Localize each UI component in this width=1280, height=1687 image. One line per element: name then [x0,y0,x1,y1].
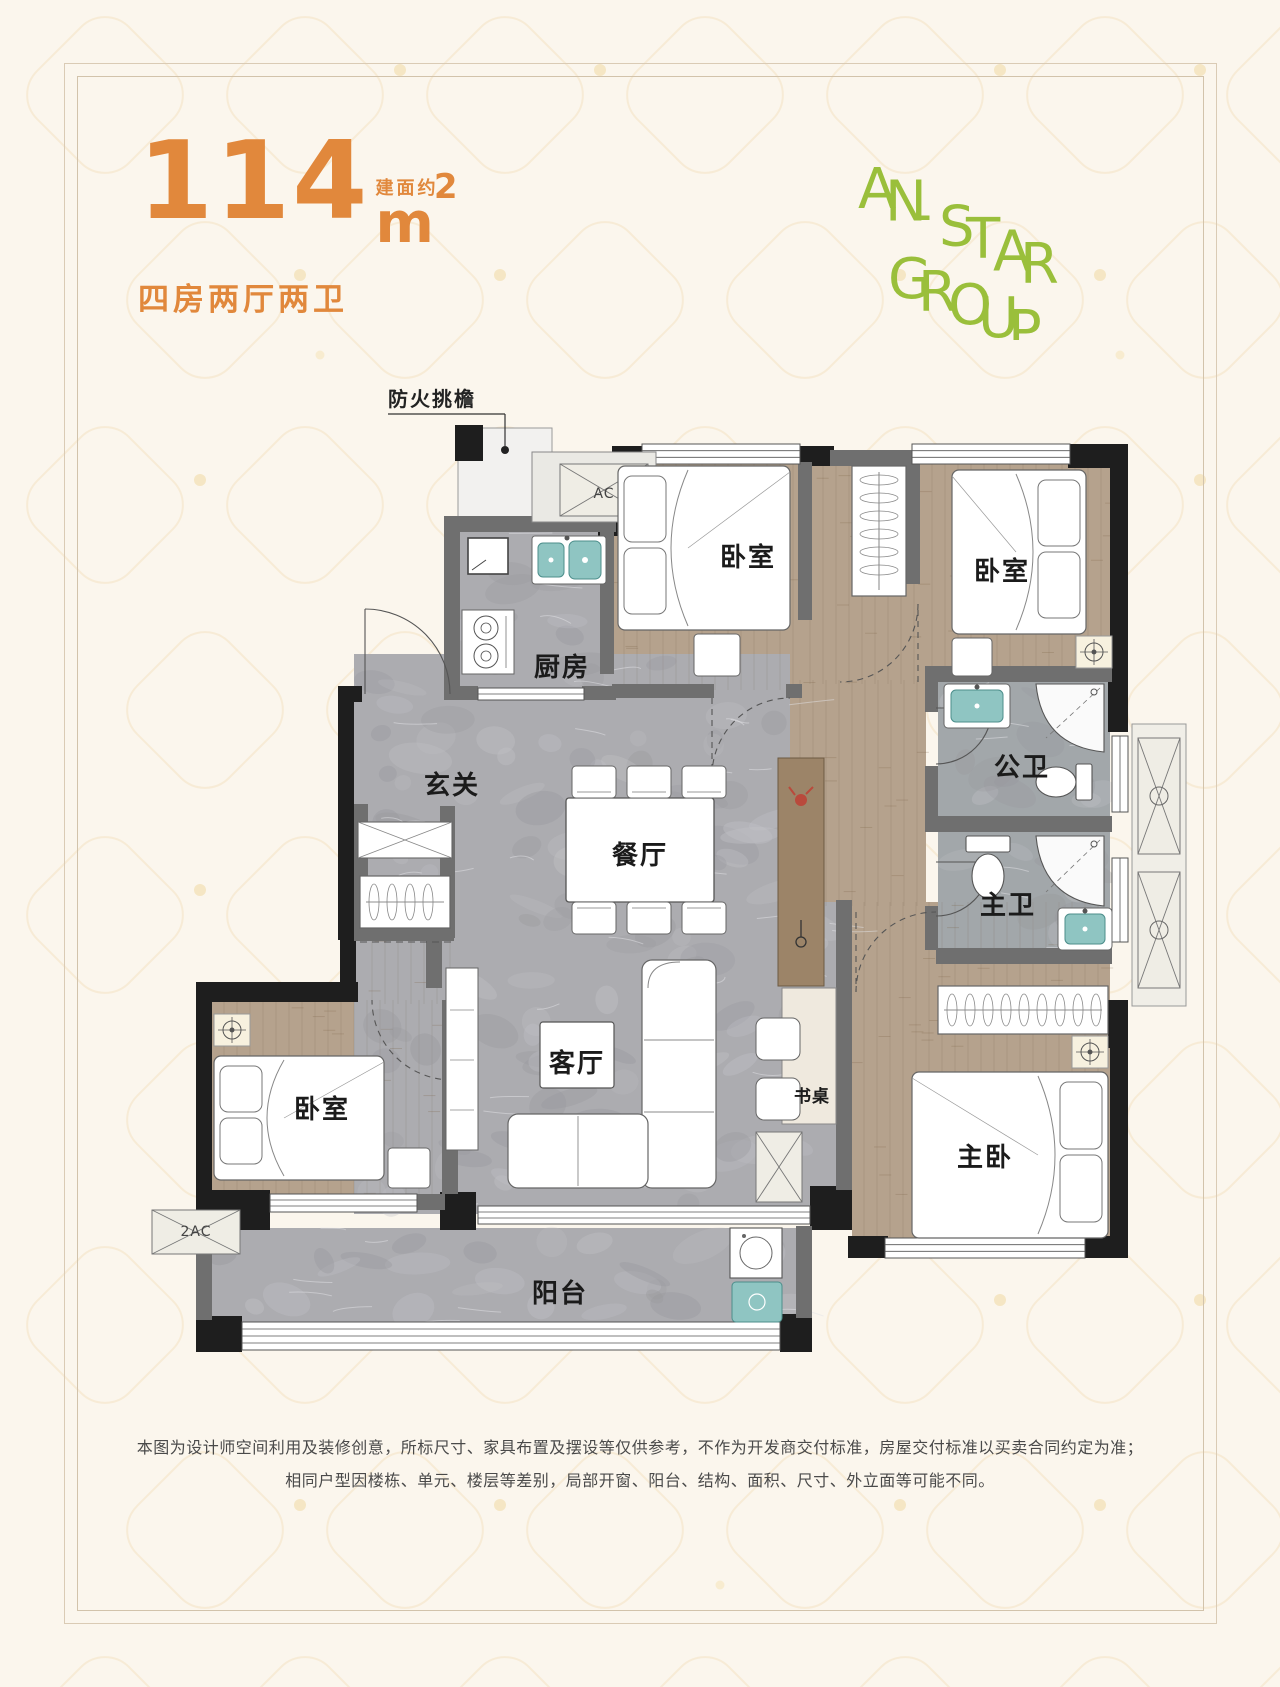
vanity-master-drain [1083,927,1088,932]
wall-black [338,700,354,940]
vanity-master-faucet [1083,909,1088,914]
bed-bedroom3-pillow [220,1118,262,1164]
dining-chair [627,766,671,798]
bed-bedroom2-pillow [1038,480,1080,546]
bed-bedroom1-pillow [624,476,666,542]
label-master-bedroom: 主卧 [957,1143,1013,1173]
plant [795,794,807,806]
desk-chair [756,1018,800,1060]
dining-chair [572,902,616,934]
nightstand-b1 [694,634,740,676]
wall-gray [798,462,812,620]
wall-gray [612,684,714,698]
wall-gray [906,462,920,584]
label-kitchen: 厨房 [534,653,590,683]
area-row: 114 建面约 m 2 [138,128,457,248]
label-bath-public: 公卫 [994,753,1050,783]
wall-black [1110,462,1128,684]
wall-gray [796,1226,812,1318]
slider-balcony [478,1206,810,1224]
wall-black [1085,1236,1128,1258]
wall-black [848,1236,888,1258]
bookshelf [778,758,824,986]
disclaimer-line1: 本图为设计师空间利用及装修创意，所标尺寸、家具布置及摆设等仅供参考，不作为开发商… [0,1440,1280,1456]
sink-drain [582,557,588,563]
vanity-public-drain [975,704,980,709]
label-ac: AC [593,486,614,502]
wall-black [1108,674,1128,732]
wall-black [340,930,356,984]
area-unit-column: 建面约 m 2 [375,174,457,248]
wall-gray [836,900,852,1190]
sofa-chaise [642,960,716,1188]
wall-black [338,686,362,702]
layout-description: 四房两厅两卫 [138,274,457,319]
wall-black [196,982,358,1002]
toilet-public-tank [1076,764,1092,800]
wall-gray [415,1194,445,1210]
label-bedroom3: 卧室 [294,1094,350,1125]
logo-letter: - [912,182,932,247]
wall-gray [830,450,914,466]
title-block: 114 建面约 m 2 四房两厅两卫 [138,128,457,319]
logo-letter: P [1008,299,1042,340]
area-superscript: 2 [434,174,458,201]
label-dining: 餐厅 [612,841,668,871]
disclaimer: 本图为设计师空间利用及装修创意，所标尺寸、家具布置及摆设等仅供参考，不作为开发商… [0,1440,1280,1489]
wall-gray [786,684,802,698]
wall-black [810,1186,852,1230]
wall-black [1108,1000,1128,1048]
bed-bedroom1-pillow [624,548,666,614]
label-entry: 玄关 [424,770,480,801]
toilet-master-tank [966,836,1010,852]
wall-black [780,1314,812,1352]
window-master [885,1238,1085,1258]
area-number: 114 [138,128,369,236]
logo-letter: R [1020,232,1059,297]
label-bedroom1: 卧室 [720,542,776,573]
bed-bedroom2-pillow [1038,552,1080,618]
window-bedroom3 [270,1194,417,1212]
vanity-public-faucet [975,685,980,690]
bed-master-pillow [1060,1082,1102,1149]
wall-black [196,1002,212,1194]
nightstand-b2 [952,638,992,676]
label-balcony: 阳台 [532,1278,588,1309]
wall-gray [925,766,938,822]
dining-chair [682,766,726,798]
window-bedroom2 [912,444,1070,464]
wall-black [196,1316,242,1352]
area-unit-row: m 2 [375,200,457,248]
bed-bedroom3-pillow [220,1066,262,1112]
dining-chair [572,766,616,798]
wall-gray [426,938,442,988]
washer-knob [742,1234,746,1238]
sink-drain [549,558,554,563]
nightstand-b3 [388,1148,430,1188]
dining-chair [627,902,671,934]
faucet [565,536,570,541]
laundry-sink [732,1282,782,1322]
label-2ac: 2AC [180,1224,211,1240]
tv-cabinet [446,968,478,1150]
wall-black [440,1192,476,1230]
wall-gray [925,906,938,950]
dining-chair [682,902,726,934]
label-bath-master: 主卫 [980,891,1036,921]
label-fire-eave: 防火挑檐 [388,387,476,411]
area-unit: m [375,200,433,248]
disclaimer-line2: 相同户型因楼栋、单元、楼层等差别，局部开窗、阳台、结构、面积、尺寸、外立面等可能… [0,1473,1280,1489]
bed-master-pillow [1060,1155,1102,1222]
eave-leader-dot [501,446,509,454]
wall-gray [582,686,616,700]
wall-gray [444,686,478,700]
wall-black [455,425,483,461]
wall-black [1110,1044,1128,1252]
washer [730,1228,782,1278]
wall-gray [925,816,1112,832]
label-desk: 书桌 [794,1087,830,1107]
brand-logo: AN-STARGROUP [830,120,1130,340]
label-bedroom2: 卧室 [974,556,1030,587]
label-living: 客厅 [549,1048,605,1079]
window-bedroom1 [642,444,800,464]
